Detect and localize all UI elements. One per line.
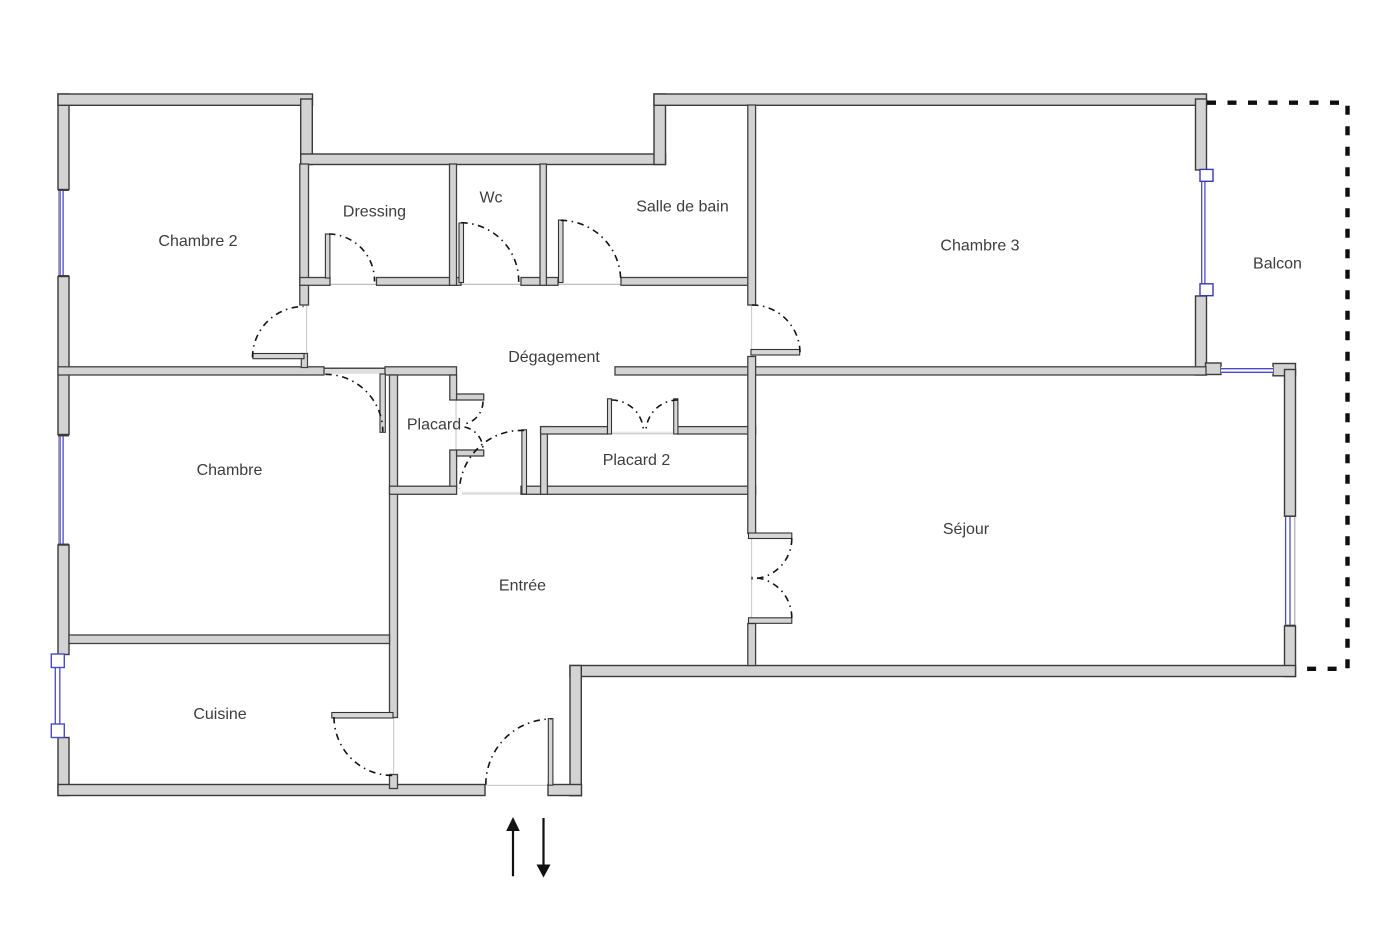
svg-text:Chambre: Chambre — [197, 462, 263, 479]
svg-text:Chambre 2: Chambre 2 — [158, 233, 237, 250]
svg-text:Dressing: Dressing — [343, 204, 406, 221]
svg-text:Balcon: Balcon — [1253, 256, 1302, 273]
svg-text:Placard 2: Placard 2 — [603, 452, 671, 469]
svg-text:Wc: Wc — [479, 190, 502, 207]
svg-text:Dégagement: Dégagement — [508, 349, 600, 366]
svg-text:Entrée: Entrée — [499, 578, 546, 595]
svg-text:Chambre 3: Chambre 3 — [940, 238, 1019, 255]
svg-text:Placard: Placard — [407, 417, 461, 434]
svg-text:Salle de bain: Salle de bain — [636, 199, 729, 216]
svg-text:Séjour: Séjour — [943, 521, 990, 538]
svg-text:Cuisine: Cuisine — [193, 706, 246, 723]
